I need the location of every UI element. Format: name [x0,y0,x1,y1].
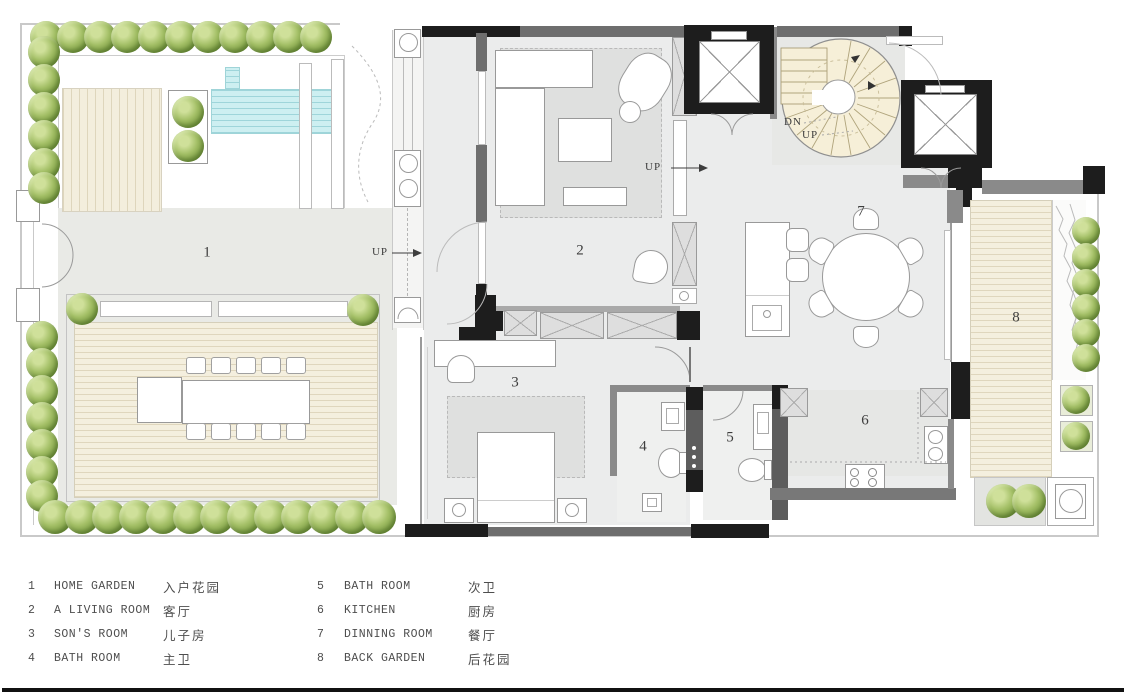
wall [948,419,954,489]
elevator-car [914,94,977,155]
tree-icon [172,130,204,162]
legend-label-en: HOME GARDEN [54,580,163,593]
cabinet [920,388,948,417]
wall [610,385,690,392]
room-number-2: 2 [576,243,584,260]
tree-icon [1072,319,1100,347]
hall-line [392,30,393,330]
room-number-6: 6 [861,413,869,430]
sink-basin [757,412,769,434]
outdoor-table [182,380,310,424]
legend-number: 5 [317,580,344,593]
lamp [452,503,466,517]
faucet [763,310,771,318]
legend-number: 4 [28,652,54,665]
terrace-deck [62,88,162,212]
tree-icon [66,293,98,325]
planter-strip [218,301,348,317]
stair-floor [772,37,905,165]
well [1059,489,1083,513]
legend-number: 3 [28,628,54,641]
legend-label-zh: 餐厅 [468,625,607,644]
legend-label-en: BATH ROOM [54,652,163,665]
legend-row: 4 BATH ROOM 主卫 [28,646,308,670]
legend-label-zh: 主卫 [163,649,308,668]
wall [422,26,520,37]
chair [853,326,879,348]
legend-label-en: A LIVING ROOM [54,604,163,617]
niche-dot [692,464,696,468]
burner [850,478,859,487]
tree-icon [1072,217,1100,245]
toilet-tank [764,460,772,480]
legend-label-zh: 厨房 [468,601,607,620]
wall [947,190,963,223]
legend-column-1: 1 HOME GARDEN 入户花园 2 A LIVING ROOM 客厅 3 … [28,574,308,670]
column [399,179,418,198]
tree-icon [1062,386,1090,414]
wardrobe [540,312,604,339]
tree-icon [1072,344,1100,372]
water-feature [225,67,240,90]
legend-label-zh: 客厅 [163,601,308,620]
back-deck [970,200,1052,478]
wall [405,524,488,537]
wall [1083,166,1105,194]
wall [686,387,703,410]
outdoor-chair [236,423,256,440]
tree-icon [172,96,204,128]
wall [686,410,703,472]
arch-door-box [394,297,421,323]
wall [610,392,617,476]
window-line [427,347,428,519]
legend-label-en: DINNING ROOM [344,628,468,641]
up-label-living: UP [645,161,661,173]
pool [211,89,342,134]
outdoor-chair [211,423,231,440]
wall [475,295,496,340]
niche-dot [692,446,696,450]
burner [850,468,859,477]
island-sink [752,305,782,331]
wardrobe [504,310,537,336]
pier [331,59,344,209]
room-number-7: 7 [857,204,865,221]
desk-chair [447,355,475,383]
legend-label-en: SON'S ROOM [54,628,163,641]
up-label-hall: UP [362,246,388,258]
wall [703,385,773,391]
room-number-3: 3 [511,375,519,392]
room-number-4: 4 [639,439,647,456]
wall [982,180,1085,194]
legend-row: 5 BATH ROOM 次卫 [317,574,607,598]
stair-door-leaf [886,36,943,45]
legend-label-en: BATH ROOM [344,580,468,593]
tree-icon [347,294,379,326]
legend-label-zh: 入户花园 [163,577,308,596]
legend-number: 6 [317,604,344,617]
room-number-5: 5 [726,430,734,447]
sink-basin [666,408,679,424]
side-table [619,101,641,123]
legend-row: 3 SON'S ROOM 儿子房 [28,622,308,646]
sink-bowl [928,447,943,461]
tree-icon [1072,243,1100,271]
boundary-line [20,23,22,537]
outdoor-chair [236,357,256,374]
cabinet [673,120,687,216]
burner [868,478,877,487]
column [399,33,418,52]
window [478,222,486,284]
dn-label-stair: DN [784,116,802,128]
legend-label-en: BACK GARDEN [344,652,468,665]
legend-column-2: 5 BATH ROOM 次卫 6 KITCHEN 厨房 7 DINNING RO… [317,574,607,670]
wall [770,488,956,500]
outdoor-chair [186,423,206,440]
outdoor-chair [211,357,231,374]
elevator-car [699,41,760,103]
window [478,71,486,145]
stool [786,228,809,252]
wall [677,311,700,340]
cabinet [672,222,697,286]
tv-bench [563,187,627,206]
elevator-door [711,31,747,40]
tree-icon [28,172,60,204]
tree-icon [1072,269,1100,297]
column [399,154,418,173]
wardrobe [607,312,677,339]
legend-number: 8 [317,652,344,665]
bed-line [478,500,554,501]
bottom-rule [2,688,1124,692]
cabinet [780,388,808,417]
planter-strip [100,301,212,317]
outdoor-chair [186,357,206,374]
floor-drain-inner [647,498,657,507]
wall [951,362,970,419]
tree-icon [300,21,332,53]
island-line [746,295,789,296]
entry-pier [16,288,40,322]
wall [903,175,951,188]
rail [403,58,404,150]
legend-number: 1 [28,580,54,593]
sink-bowl [928,430,943,444]
outdoor-chair [261,357,281,374]
legend-number: 7 [317,628,344,641]
legend-row: 7 DINNING ROOM 餐厅 [317,622,607,646]
wall [476,145,487,222]
outdoor-table [137,377,182,423]
legend-label-zh: 儿子房 [163,625,308,644]
burner [868,468,877,477]
stool [786,258,809,282]
wall [686,470,703,492]
legend-row: 6 KITCHEN 厨房 [317,598,607,622]
pier [299,63,312,209]
floor-plan: 1 2 3 4 5 6 7 8 UP UP DN UP 1 HOME GARDE… [0,0,1145,697]
legend-row: 8 BACK GARDEN 后花园 [317,646,607,670]
room-number-1: 1 [203,245,211,262]
tree-icon [1072,294,1100,322]
outdoor-chair [286,423,306,440]
legend-number: 2 [28,604,54,617]
tree-icon [362,500,396,534]
wall [476,33,487,71]
lamp [565,503,579,517]
outdoor-chair [286,357,306,374]
niche-dot [692,455,696,459]
wall [488,527,692,536]
wall [948,164,982,188]
tree-icon [1062,422,1090,450]
coffee-table [558,118,612,162]
rail [412,58,413,150]
legend-label-zh: 次卫 [468,577,607,596]
legend-row: 2 A LIVING ROOM 客厅 [28,598,308,622]
bed [477,432,555,523]
toilet [738,458,766,482]
sofa [495,88,545,206]
legend-row: 1 HOME GARDEN 入户花园 [28,574,308,598]
wall [772,409,788,520]
up-label-stair: UP [802,129,818,141]
legend-label-en: KITCHEN [344,604,468,617]
legend-label-zh: 后花园 [468,649,607,668]
elevator-door [925,85,965,93]
wall-line [420,337,422,525]
outdoor-chair [261,423,281,440]
wall [459,327,475,340]
room-number-8: 8 [1012,310,1020,327]
slider-door [944,230,951,360]
step-line [407,208,408,296]
wall [520,26,687,37]
basin [679,291,689,301]
sofa [495,50,593,88]
tree-icon [1012,484,1046,518]
wall [691,524,769,538]
